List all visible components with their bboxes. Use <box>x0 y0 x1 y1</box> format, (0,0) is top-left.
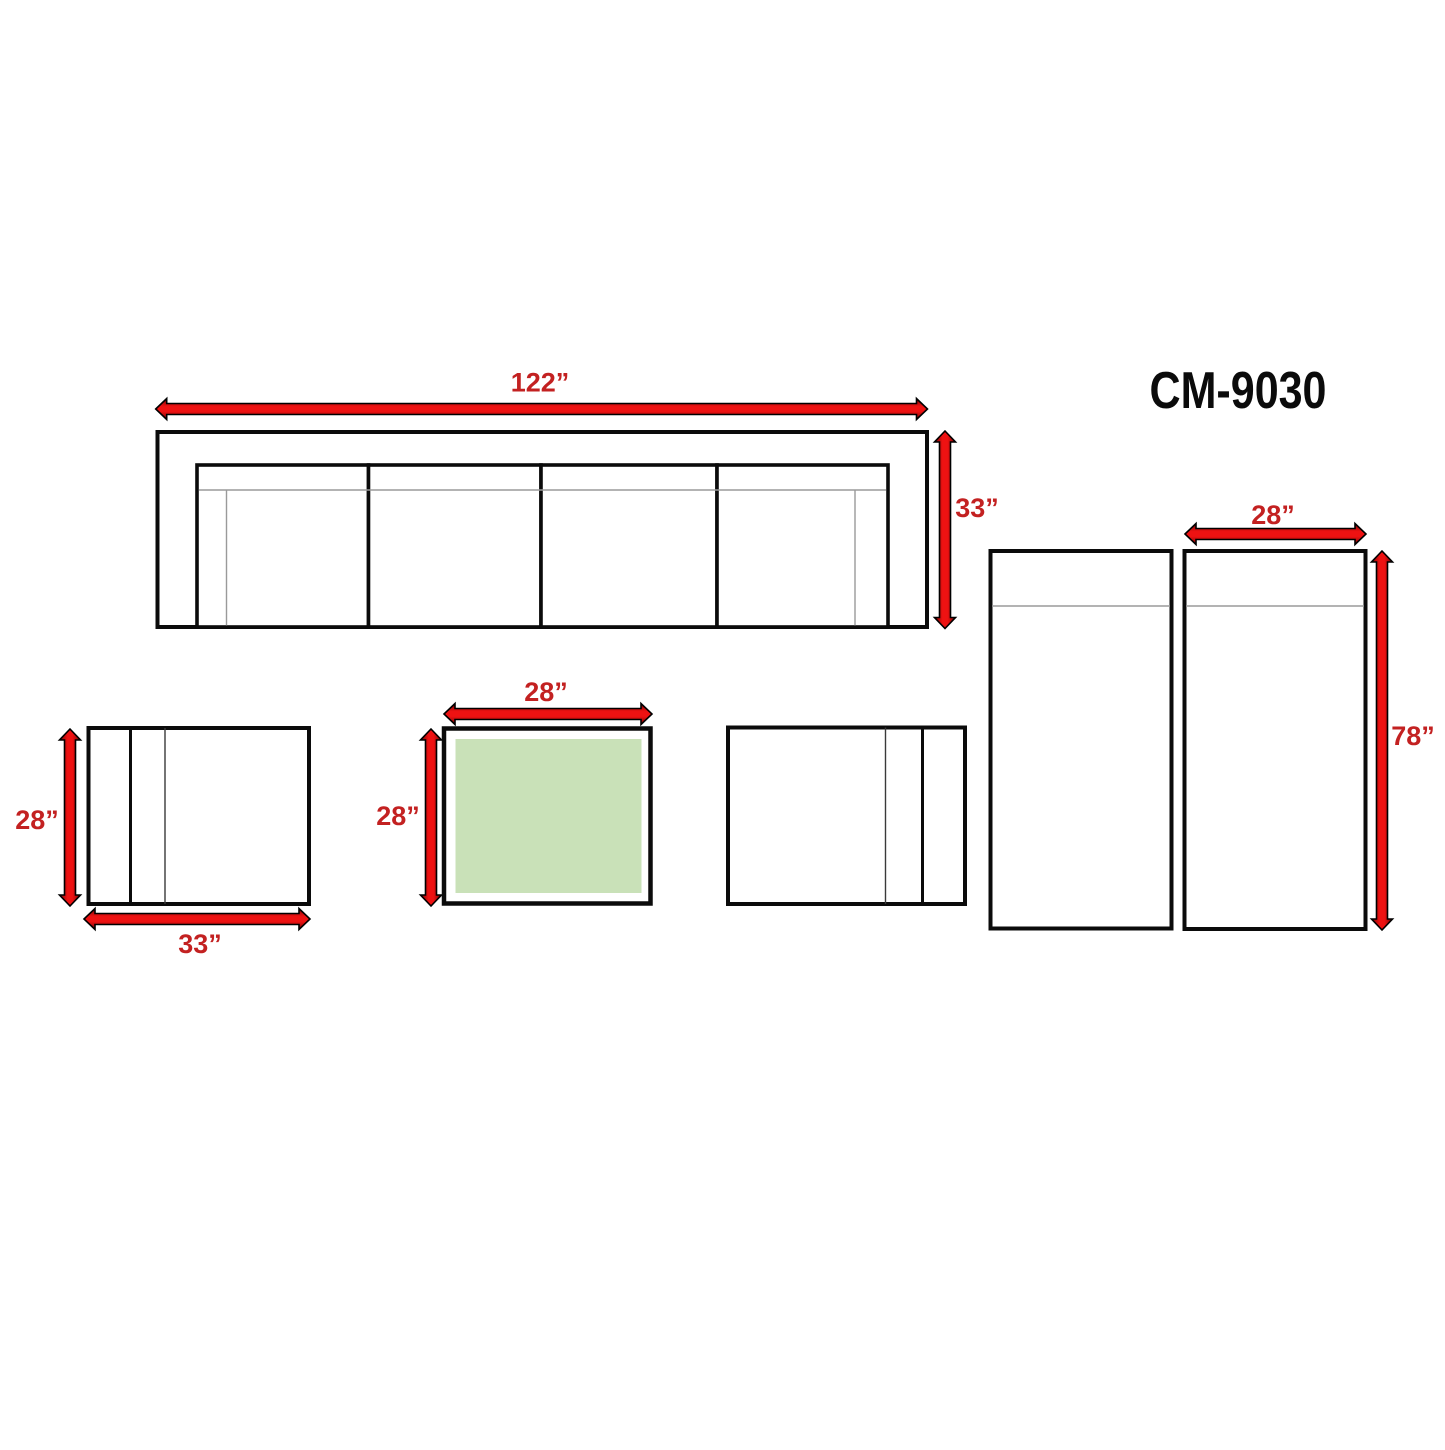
svg-text:28”: 28” <box>15 805 59 835</box>
svg-text:122”: 122” <box>511 368 570 398</box>
svg-text:33”: 33” <box>178 929 222 959</box>
svg-text:33”: 33” <box>955 493 999 523</box>
svg-text:28”: 28” <box>524 677 568 707</box>
svg-text:78”: 78” <box>1391 721 1435 751</box>
svg-text:28”: 28” <box>376 801 420 831</box>
svg-text:28”: 28” <box>1251 500 1295 530</box>
svg-text:CM-9030: CM-9030 <box>1150 362 1327 420</box>
